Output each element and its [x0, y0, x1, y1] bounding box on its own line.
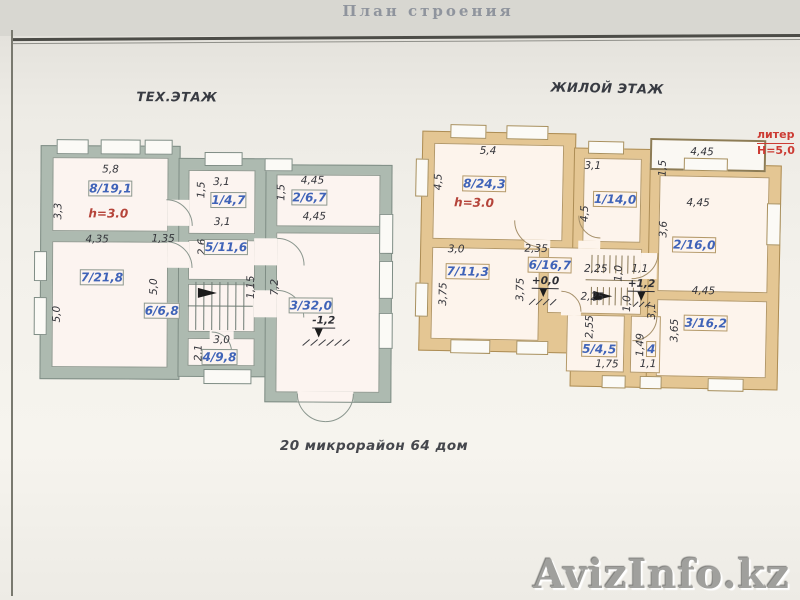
room-label: 7/11,3 [445, 263, 490, 280]
dim-label: 3,0 [448, 243, 465, 255]
dim-label: 5,4 [480, 145, 497, 157]
window [450, 339, 490, 354]
dim-label: 3,6 [657, 221, 669, 238]
window [602, 375, 626, 388]
room-label: 6/16,7 [528, 257, 573, 274]
room-label: 4 [646, 341, 657, 357]
window [684, 158, 728, 172]
room-label: 3/16,2 [683, 315, 728, 332]
dim-label: 4,5 [432, 173, 444, 190]
dim-label: 2,25 [584, 263, 608, 275]
dim-label: 4,45 [692, 285, 716, 297]
room-label: 5/4,5 [581, 341, 617, 358]
window [639, 376, 661, 389]
address-caption: 20 микрорайон 64 дом [280, 438, 468, 454]
dim-label: 1,5 [657, 160, 669, 177]
dim-label: 2,35 [524, 243, 548, 255]
window [415, 158, 429, 196]
dim-label: 4,45 [690, 146, 714, 158]
window [588, 141, 624, 155]
dim-label: 1,0 [613, 265, 625, 282]
window [415, 283, 429, 317]
dim-label: 1,75 [595, 358, 619, 370]
room-label: 2/16,0 [672, 236, 717, 253]
dim-label: 3,65 [668, 319, 680, 343]
dim-label: 3,1 [584, 160, 601, 172]
watermark-text: AvizInfo.kz [533, 551, 790, 598]
room-label: 8/24,3 [462, 175, 507, 192]
door-opening [578, 241, 600, 249]
dim-label: 4,5 [579, 205, 591, 222]
window [450, 124, 486, 139]
window [766, 203, 781, 245]
dim-label: 3,1 [646, 303, 658, 320]
window [506, 125, 548, 140]
dim-label: 1,49 [634, 333, 646, 357]
door-opening [561, 307, 581, 315]
dim-label: 1,1 [640, 358, 657, 370]
window [516, 340, 548, 355]
residential-floor-plan: ЖИЛОЙ ЭТАЖ5,44,58/24,3h=3.03,14,51/14,04… [0, 0, 800, 600]
liter-note-line2: Н=5,0 [757, 144, 795, 157]
dim-label: 2,55 [583, 315, 595, 339]
dim-label: 3,75 [514, 278, 526, 302]
window [707, 378, 743, 392]
room-label: 1/14,0 [593, 191, 638, 208]
dim-label: 1,1 [631, 263, 648, 275]
liter-note-line1: литер [757, 128, 794, 144]
level-label: +1,2 [628, 278, 656, 293]
level-label: +0,0 [532, 275, 560, 290]
plan-title: ЖИЛОЙ ЭТАЖ [550, 81, 664, 98]
red-label: h=3.0 [454, 195, 494, 210]
liter-note: литер Н=5,0 [757, 128, 800, 158]
photo-of-floor-plan-document: План строения [0, 0, 800, 600]
dim-label: 4,45 [686, 197, 710, 209]
dim-label: 3,75 [437, 282, 449, 306]
room [657, 175, 769, 293]
dim-label: 1,0 [621, 295, 633, 312]
dim-label: 2,25 [580, 291, 604, 303]
